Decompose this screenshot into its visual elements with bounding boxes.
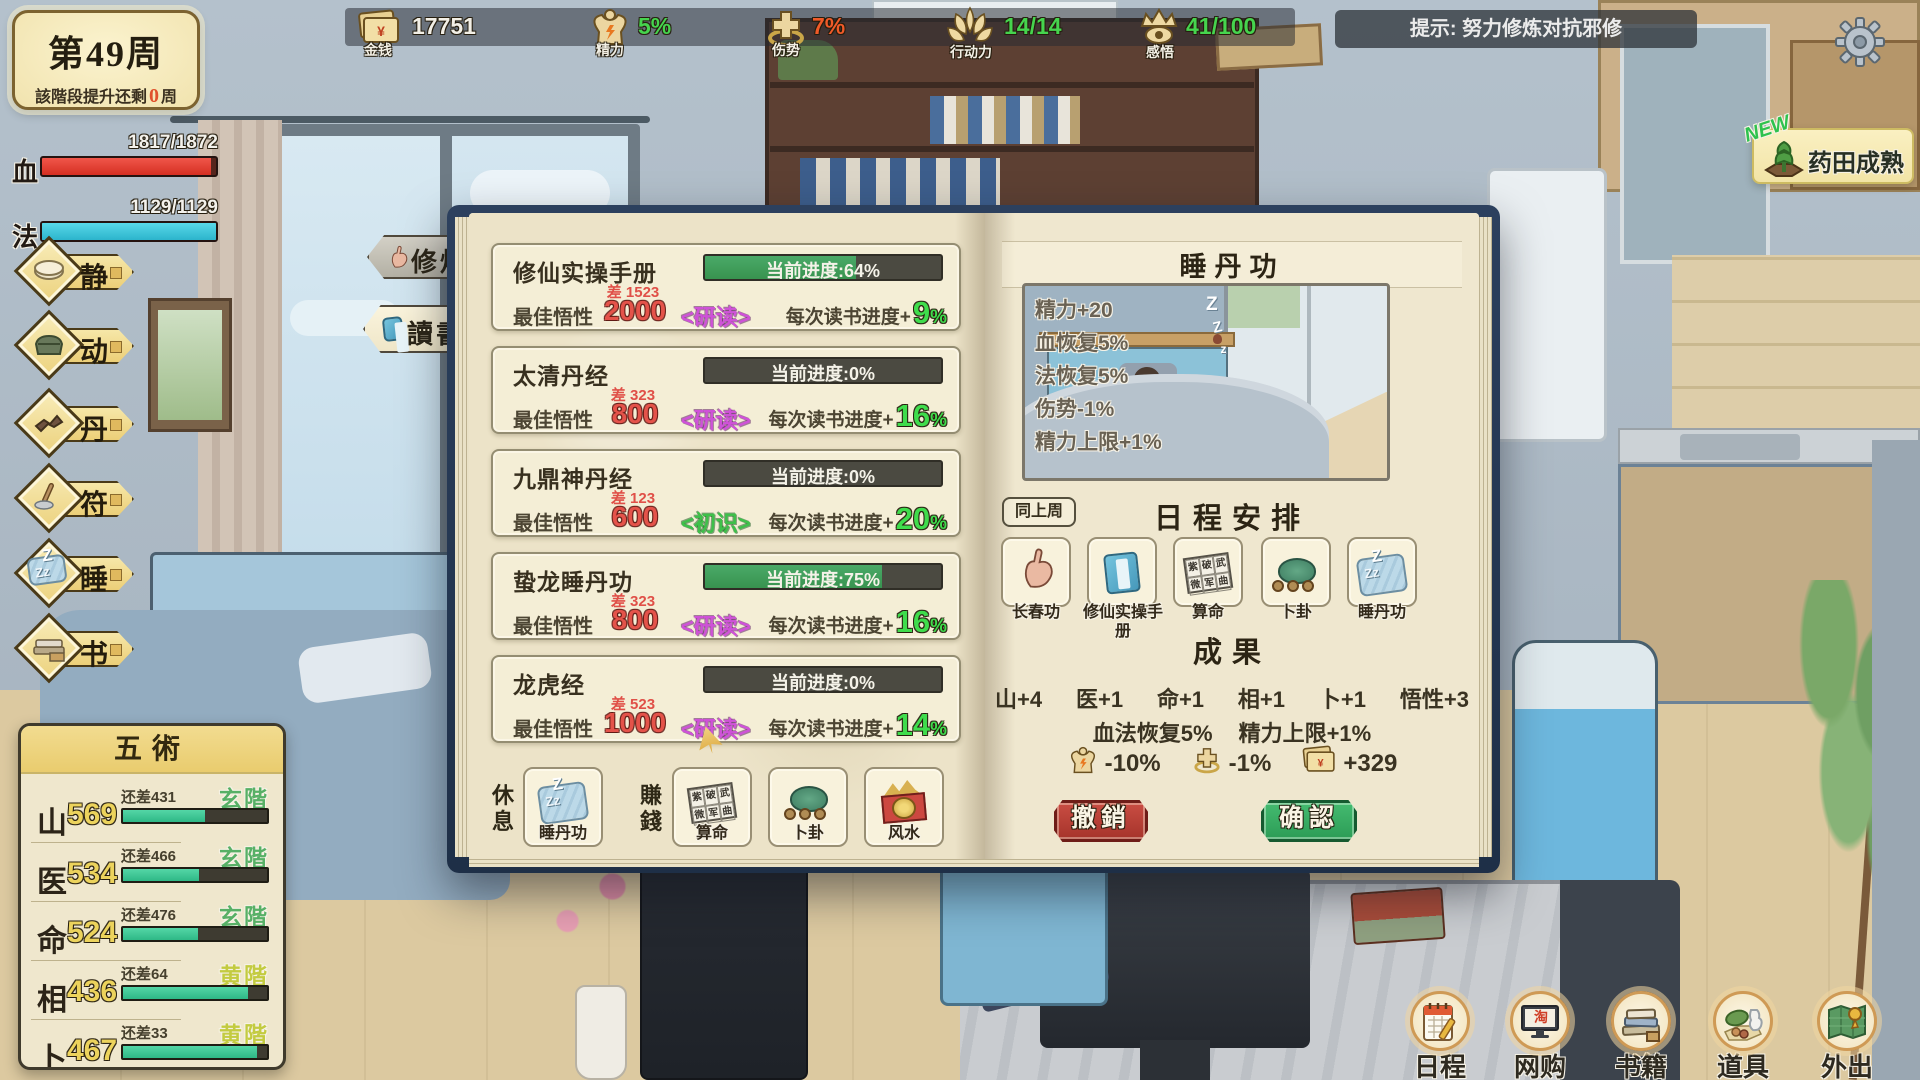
art-bar-fill <box>123 1046 257 1058</box>
injury-value: 7% <box>812 13 845 40</box>
rest-label: 休息 <box>491 783 515 835</box>
results-effects-row: 血法恢复5% 精力上限+1% <box>1002 716 1462 748</box>
blue-book-icon <box>383 317 405 341</box>
gain-value: 14 <box>896 707 930 743</box>
gain-label: 每次读书进度+ <box>769 714 894 741</box>
read-mode-badge[interactable]: <研读> <box>681 300 751 332</box>
gain-item: 命+1 <box>1157 682 1204 714</box>
herb-field-icon <box>1762 136 1806 185</box>
injury-cost-value: -1% <box>1229 750 1272 778</box>
muscle-icon <box>1067 745 1099 782</box>
gain-unit: % <box>930 513 947 535</box>
aptitude-label: 最佳悟性 <box>513 507 593 536</box>
shopping-monitor-icon: 淘 <box>1510 991 1570 1051</box>
five-arts-panel: 五術 山 569 还差431 玄階 医 534 还差466 玄階 命 524 还… <box>18 723 286 1070</box>
energy-value: 5% <box>638 13 671 40</box>
gain-unit: % <box>930 410 947 432</box>
art-remaining: 还差33 <box>121 1022 168 1043</box>
book-progress-bar: 当前进度:0% <box>703 357 943 384</box>
art-value: 436 <box>67 975 117 1009</box>
sleep-blanket-icon <box>1358 556 1406 594</box>
art-bar-fill <box>123 928 198 940</box>
fengshui-compass-icon <box>880 782 928 824</box>
aptitude-value: 2000 <box>589 295 681 327</box>
art-remaining: 还差431 <box>121 786 176 807</box>
gain-value: 9 <box>913 295 930 331</box>
gain-group: 每次读书进度+ 20 % <box>769 501 948 537</box>
gain-group: 每次读书进度+ 14 % <box>769 707 948 743</box>
sidebar-item-sleep[interactable]: 睡 <box>22 546 134 602</box>
art-label: 卜 <box>37 1034 67 1070</box>
fortune-paper-icon: 紫破武微军曲 <box>689 785 735 821</box>
gain-group: 每次读书进度+ 16 % <box>769 398 948 434</box>
book-progress-label: 当前进度:0% <box>705 360 941 384</box>
aptitude-value: 800 <box>589 398 681 430</box>
confirm-button[interactable]: 确認 <box>1261 800 1357 842</box>
mp-value: 1129/1129 <box>58 197 218 219</box>
fortune-paper-icon: 紫破武微军曲 <box>1185 555 1231 591</box>
gain-group: 每次读书进度+ 9 % <box>786 295 947 331</box>
detail-title: 睡丹功 <box>1002 241 1462 288</box>
week-title: 第49周 <box>15 25 197 77</box>
sidebar-label-move: 动 <box>80 330 108 370</box>
insight-value: 41/100 <box>1186 13 1256 40</box>
sidebar-label-sleep: 睡 <box>80 558 108 598</box>
five-arts-title: 五術 <box>21 726 283 774</box>
schedule-card-label: 睡丹功 <box>1347 603 1417 622</box>
img-zzz: z <box>1220 342 1226 356</box>
schedule-card-divination[interactable] <box>1261 537 1331 607</box>
sidebar-item-pill[interactable]: 丹 <box>22 396 134 452</box>
money-label: 金钱 <box>350 40 406 60</box>
hand-sign-icon <box>387 245 409 269</box>
sidebar-item-still[interactable]: 静 <box>22 244 134 300</box>
money-gain-value: +329 <box>1343 750 1397 778</box>
art-remaining: 还差476 <box>121 904 176 925</box>
fortune-char: 武 <box>717 784 733 804</box>
action-value: 14/14 <box>1004 13 1062 40</box>
gear-icon[interactable] <box>1834 16 1886 73</box>
gain-label: 每次读书进度+ <box>769 405 894 432</box>
art-value: 534 <box>67 857 117 891</box>
img-window-frame2 <box>1307 286 1311 420</box>
sidebar-label-still: 静 <box>80 256 108 296</box>
aptitude-label: 最佳悟性 <box>513 610 593 639</box>
svg-text:¥: ¥ <box>1318 757 1325 769</box>
bg-desk-books <box>1350 887 1445 945</box>
results-gains-row: 山+4 医+1 命+1 相+1 卜+1 悟性+3 <box>995 682 1469 714</box>
nav-shopping[interactable]: 淘 网购 <box>1500 991 1580 1080</box>
five-arts-row-physiognomy: 相 436 还差64 黄階 <box>21 961 283 1016</box>
bag-icon <box>32 330 66 360</box>
hp-label: 血 <box>12 152 38 189</box>
action-label: 行动力 <box>938 42 1004 62</box>
blanket-icon <box>28 556 62 586</box>
effect-line: 精力+20 <box>1035 294 1162 327</box>
hp-value: 1817/1872 <box>58 132 218 154</box>
nav-items[interactable]: 道具 <box>1703 991 1783 1080</box>
book-item-longhu[interactable]: 龙虎经 当前进度:0% 差 523 最佳悟性 1000 <研读> 每次读书进度+… <box>491 655 961 743</box>
gain-label: 每次读书进度+ <box>769 611 894 638</box>
book-progress-bar: 当前进度:0% <box>703 666 943 693</box>
gain-item: 山+4 <box>995 682 1042 714</box>
bg-sink <box>1680 434 1800 460</box>
hp-bar <box>40 156 218 177</box>
schedule-card-label: 长春功 <box>987 603 1085 622</box>
svg-text:¥: ¥ <box>377 23 385 39</box>
art-bar <box>121 926 269 942</box>
book-progress-label: 当前进度:0% <box>705 669 941 693</box>
schedule-card-manual[interactable] <box>1087 537 1157 607</box>
sidebar-item-talisman[interactable]: 符 <box>22 471 134 527</box>
week-badge: 第49周 該階段提升还剩0周 <box>12 10 200 110</box>
book-stack-icon <box>1611 991 1671 1051</box>
art-value: 467 <box>67 1034 117 1068</box>
activity-card-label: 风水 <box>866 819 942 843</box>
aptitude-label: 最佳悟性 <box>513 404 593 433</box>
aptitude-label: 最佳悟性 <box>513 301 593 330</box>
nav-schedule-label: 日程 <box>1400 1047 1480 1080</box>
book-progress-bar: 当前进度:75% <box>703 563 943 590</box>
effect-line: 法恢复5% <box>1035 360 1162 393</box>
sleep-blanket-icon <box>539 784 587 822</box>
bg-right-wall-edge <box>1872 440 1920 1080</box>
bg-shelf-line2 <box>770 146 1254 152</box>
bg-shelf-books1 <box>930 96 1080 144</box>
art-bar-fill <box>123 987 248 999</box>
book-progress-bar: 当前进度:0% <box>703 460 943 487</box>
effect-line: 血恢复5% <box>1035 327 1162 360</box>
books-icon <box>32 633 66 663</box>
herb-root-icon <box>32 408 66 438</box>
energy-cost: -10% <box>1067 745 1161 782</box>
bg-fridge <box>1487 168 1607 442</box>
detail-effects: 精力+20 血恢复5% 法恢复5% 伤势-1% 精力上限+1% <box>1035 294 1162 459</box>
gain-item: 医+1 <box>1076 682 1123 714</box>
cross-icon <box>1191 746 1223 781</box>
earn-label: 賺錢 <box>639 783 663 835</box>
book-progress-label: 当前进度:75% <box>705 566 941 590</box>
art-bar <box>121 808 269 824</box>
nav-go-out[interactable]: 外出 <box>1807 991 1887 1080</box>
gain-unit: % <box>930 616 947 638</box>
schedule-card-label: 卜卦 <box>1261 603 1331 622</box>
art-bar-fill <box>123 810 205 822</box>
effect-line: 精力上限+1% <box>1035 426 1162 459</box>
taobao-char: 淘 <box>1534 1007 1548 1027</box>
money-gain: ¥ +329 <box>1301 745 1397 782</box>
blue-book-icon <box>1105 553 1139 593</box>
activity-card-divination[interactable]: 卜卦 <box>768 767 848 847</box>
gain-unit: % <box>930 307 947 329</box>
results-costs-row: -10% -1% ¥ +329 <box>1002 745 1462 782</box>
bg-tile-wall <box>1672 255 1920 429</box>
injury-label: 伤势 <box>760 40 812 60</box>
week-subtitle: 該階段提升还剩0周 <box>15 83 197 108</box>
aptitude-value: 600 <box>589 501 681 533</box>
energy-cost-value: -10% <box>1105 750 1161 778</box>
energy-label: 精力 <box>584 40 636 60</box>
sidebar-label-pill: 丹 <box>80 408 108 448</box>
tip-bar: 提示: 努力修炼对抗邪修 <box>1335 10 1697 48</box>
art-value: 524 <box>67 916 117 950</box>
nav-go-out-label: 外出 <box>1807 1047 1887 1080</box>
book-item-zhelong[interactable]: 蛰龙睡丹功 当前进度:75% 差 323 最佳悟性 800 <研读> 每次读书进… <box>491 552 961 640</box>
img-bushes <box>1228 286 1300 328</box>
activity-card-label: 睡丹功 <box>525 819 601 843</box>
brush-icon <box>32 483 66 513</box>
book-progress-label: 当前进度:0% <box>705 463 941 487</box>
aptitude-label: 最佳悟性 <box>513 713 593 742</box>
effect-summary: 血法恢复5% <box>1093 716 1213 748</box>
gain-item: 悟性+3 <box>1400 682 1469 714</box>
mp-bar-fill <box>42 223 216 240</box>
art-label: 山 <box>37 798 67 842</box>
five-arts-row-medicine: 医 534 还差466 玄階 <box>21 843 283 898</box>
art-remaining: 还差466 <box>121 845 176 866</box>
art-bar <box>121 867 269 883</box>
sidebar-item-move[interactable]: 动 <box>22 318 134 374</box>
mp-bar <box>40 221 218 242</box>
schedule-card-label: 算命 <box>1173 603 1243 622</box>
gain-item: 相+1 <box>1238 682 1285 714</box>
hand-sign-icon <box>1018 547 1054 596</box>
activity-card-fortune[interactable]: 紫破武微军曲 算命 <box>672 767 752 847</box>
turtle-coins-icon <box>784 786 832 820</box>
bg-picture-art <box>158 310 222 420</box>
effect-line: 伤势-1% <box>1035 393 1162 426</box>
money-value: 17751 <box>412 13 476 40</box>
items-icon <box>1713 991 1773 1051</box>
harvest-text: 药田成熟 <box>1808 143 1904 178</box>
art-label: 相 <box>37 975 67 1019</box>
read-mode-badge[interactable]: <研读> <box>681 609 751 641</box>
sidebar-item-book[interactable]: 书 <box>22 621 134 677</box>
gain-unit: % <box>930 719 947 741</box>
week-remaining-value: 0 <box>147 85 161 107</box>
bg-shelf-line1 <box>770 82 1254 88</box>
calendar-icon <box>1410 991 1470 1051</box>
sidebar-label-talisman: 符 <box>80 483 108 523</box>
aptitude-value: 1000 <box>589 707 681 739</box>
schedule-book: 修煉 讀書 修仙实操手册 当前进度:64% 差 1523 最佳悟性 2000 <… <box>447 205 1500 873</box>
bg-shelf-books2 <box>800 158 1000 206</box>
schedule-card-fortune[interactable]: 紫破武微军曲 <box>1173 537 1243 607</box>
five-arts-row-mountain: 山 569 还差431 玄階 <box>21 784 283 839</box>
book-progress-bar: 当前进度:64% <box>703 254 943 281</box>
nav-schedule[interactable]: 日程 <box>1400 991 1480 1080</box>
week-subtitle-prefix: 該階段提升还剩 <box>35 89 147 106</box>
book-progress-label: 当前进度:64% <box>705 257 941 281</box>
gain-label: 每次读书进度+ <box>786 302 911 329</box>
money-cards-icon: ¥ <box>1301 745 1337 782</box>
art-label: 医 <box>37 857 67 901</box>
cancel-button[interactable]: 撤銷 <box>1054 800 1148 842</box>
nav-shopping-label: 网购 <box>1500 1047 1580 1080</box>
bg-window-sky <box>270 136 440 596</box>
activity-card-sleep[interactable]: 睡丹功 <box>523 767 603 847</box>
activity-card-label: 卜卦 <box>770 819 846 843</box>
schedule-card-sleep[interactable] <box>1347 537 1417 607</box>
effect-summary: 精力上限+1% <box>1239 716 1372 748</box>
img-zzz: Z <box>1206 294 1218 316</box>
art-bar <box>121 985 269 1001</box>
gain-value: 16 <box>896 398 930 434</box>
nav-items-label: 道具 <box>1703 1047 1783 1080</box>
activity-card-label: 算命 <box>674 819 750 843</box>
book-item-xiuxian-manual[interactable]: 修仙实操手册 当前进度:64% 差 1523 最佳悟性 2000 <研读> 每次… <box>491 243 961 331</box>
bg-water-bottle <box>1512 640 1658 900</box>
art-label: 命 <box>37 916 67 960</box>
art-bar <box>121 1044 269 1060</box>
activity-card-fengshui[interactable]: 风水 <box>864 767 944 847</box>
gain-value: 20 <box>896 501 930 537</box>
injury-cost: -1% <box>1191 746 1272 781</box>
book-item-jiuding[interactable]: 九鼎神丹经 当前进度:0% 差 123 最佳悟性 600 <初识> 每次读书进度… <box>491 449 961 537</box>
five-arts-row-divination: 卜 467 还差33 黄階 <box>21 1020 283 1070</box>
read-mode-badge[interactable]: <研读> <box>681 403 751 435</box>
img-zzz: Z <box>1212 318 1225 337</box>
art-bar-fill <box>123 869 199 881</box>
read-mode-badge[interactable]: <初识> <box>681 506 751 538</box>
book-item-taiqing[interactable]: 太清丹经 当前进度:0% 差 323 最佳悟性 800 <研读> 每次读书进度+… <box>491 346 961 434</box>
gain-item: 卜+1 <box>1319 682 1366 714</box>
five-arts-row-fate: 命 524 还差476 玄階 <box>21 902 283 957</box>
gain-value: 16 <box>896 604 930 640</box>
gain-label: 每次读书进度+ <box>769 508 894 535</box>
hp-bar-fill <box>42 158 211 175</box>
bg-monitor-stand <box>1140 1040 1210 1080</box>
insight-label: 感悟 <box>1134 42 1186 62</box>
schedule-card-changchun[interactable] <box>1001 537 1071 607</box>
art-remaining: 还差64 <box>121 963 168 984</box>
results-title: 成果 <box>1002 629 1462 671</box>
map-pin-icon <box>1817 991 1877 1051</box>
fortune-char: 武 <box>1213 554 1229 574</box>
schedule-title: 日程安排 <box>1002 495 1462 537</box>
week-subtitle-suffix: 周 <box>161 89 177 106</box>
fortune-char: 曲 <box>1215 572 1231 592</box>
nav-books[interactable]: 书籍 <box>1601 991 1681 1080</box>
herb-field-toast[interactable]: NEW 药田成熟 <box>1752 128 1914 184</box>
nav-books-label: 书籍 <box>1601 1047 1681 1080</box>
art-value: 569 <box>67 798 117 832</box>
sidebar-label-book: 书 <box>80 633 108 673</box>
cushion-icon <box>32 256 66 286</box>
aptitude-value: 800 <box>589 604 681 636</box>
gain-group: 每次读书进度+ 16 % <box>769 604 948 640</box>
bg-blossom-vase <box>575 985 627 1080</box>
detail-image: Z Z z 精力+20 血恢复5% 法恢复5% 伤势-1% 精力上限+1% <box>1022 283 1390 481</box>
turtle-coins-icon <box>1272 558 1320 592</box>
